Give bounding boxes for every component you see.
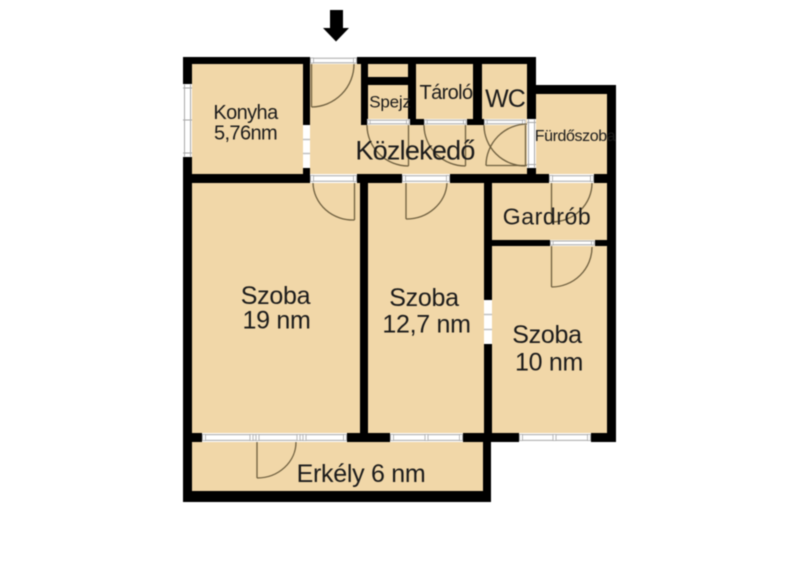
svg-text:Közlekedő: Közlekedő — [355, 136, 474, 166]
svg-text:WC: WC — [485, 85, 526, 113]
svg-text:10 nm: 10 nm — [515, 349, 583, 377]
svg-text:Erkély 6 nm: Erkély 6 nm — [297, 460, 426, 488]
svg-text:5,76nm: 5,76nm — [214, 123, 277, 145]
svg-text:Fürdőszoba: Fürdőszoba — [535, 128, 616, 145]
svg-text:19 nm: 19 nm — [243, 307, 311, 335]
svg-text:Konyha: Konyha — [213, 102, 279, 124]
svg-text:Tároló: Tároló — [419, 82, 473, 104]
svg-text:12,7 nm: 12,7 nm — [382, 311, 470, 339]
svg-text:Spejz: Spejz — [369, 93, 411, 112]
svg-text:Gardrób: Gardrób — [503, 204, 592, 230]
svg-text:Szoba: Szoba — [512, 321, 582, 349]
svg-text:Szoba: Szoba — [389, 284, 459, 312]
